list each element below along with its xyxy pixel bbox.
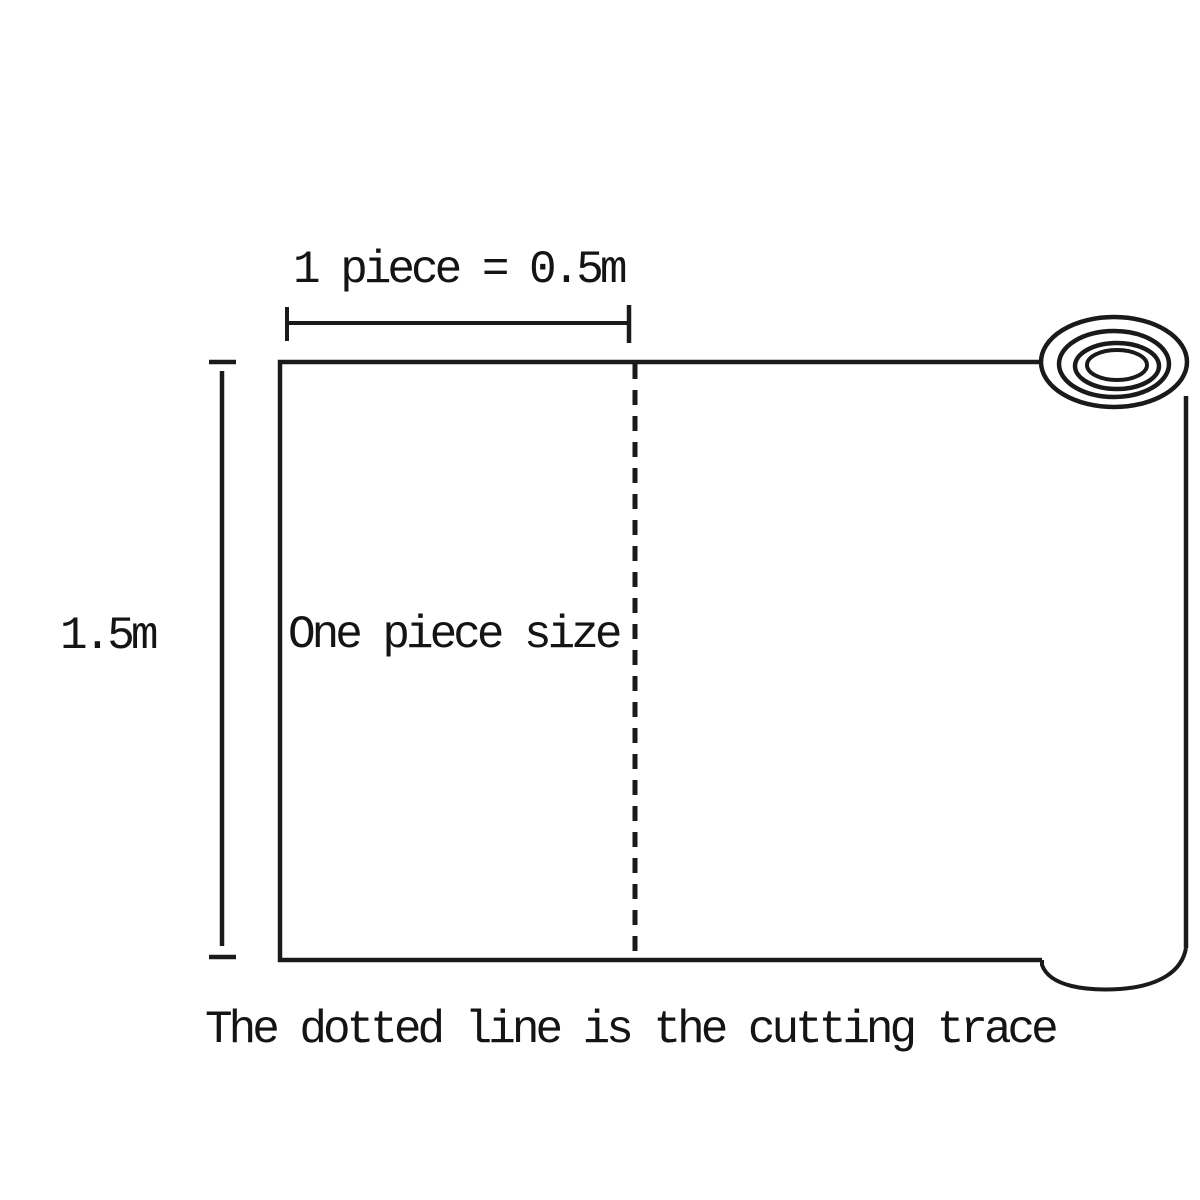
sheet-bottom-curve	[1042, 948, 1186, 989]
paper-roll-icon	[1041, 317, 1187, 407]
width-dimension-label: 1 piece = 0.5m	[293, 247, 623, 293]
width-dimension-line	[287, 305, 629, 343]
roll-dimension-diagram: 1 piece = 0.5m 1.5m One piece size The d…	[0, 0, 1200, 1200]
sheet-outline	[280, 362, 1042, 960]
height-dimension-line	[209, 362, 236, 957]
height-dimension-label: 1.5m	[60, 613, 154, 659]
caption-text: The dotted line is the cutting trace	[205, 1007, 1055, 1053]
piece-size-label: One piece size	[288, 612, 618, 658]
